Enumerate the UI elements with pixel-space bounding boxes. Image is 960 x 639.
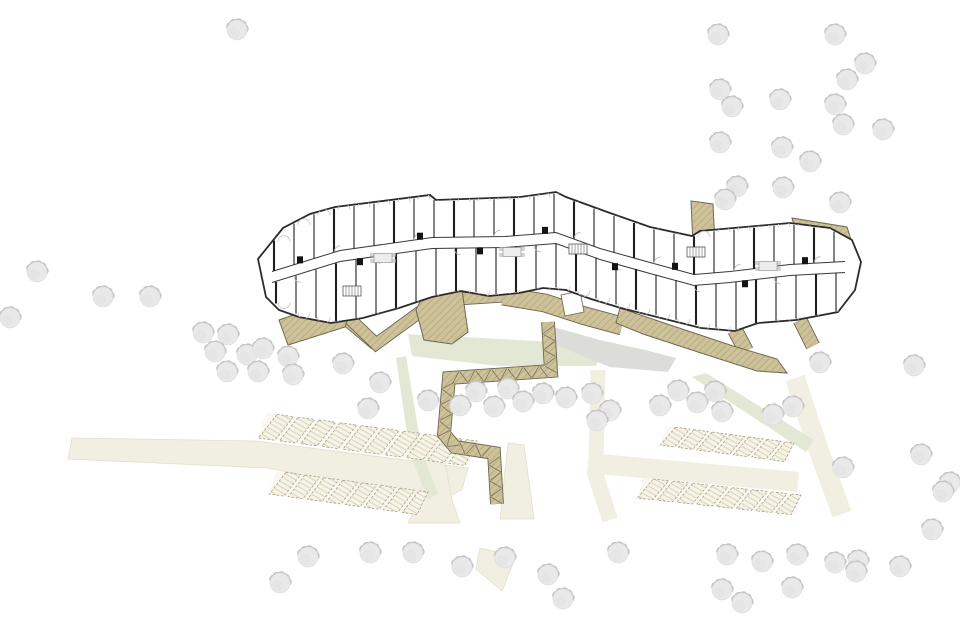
site-plan xyxy=(0,0,960,639)
tree-canopy-shade xyxy=(775,185,786,196)
tree-canopy-shade xyxy=(468,389,479,400)
tree-canopy-shade xyxy=(839,77,850,88)
tree-canopy-shade xyxy=(707,389,718,400)
tree-canopy-shade xyxy=(913,452,924,463)
tree-canopy-shade xyxy=(497,555,508,566)
tree-canopy-shade xyxy=(454,564,465,575)
tree-canopy-shade xyxy=(405,550,416,561)
table-top xyxy=(759,262,777,271)
chair xyxy=(500,254,503,257)
chair xyxy=(778,268,781,271)
tree-canopy-shade xyxy=(734,600,745,611)
tree-canopy-shade xyxy=(802,159,813,170)
tree-canopy-shade xyxy=(719,552,730,563)
site-plan-svg xyxy=(0,0,960,639)
tree-canopy-shade xyxy=(754,559,765,570)
tree-canopy-shade xyxy=(785,404,796,415)
tree-canopy-shade xyxy=(515,399,526,410)
tree-canopy-shade xyxy=(875,127,886,138)
tree-canopy-shade xyxy=(906,363,917,374)
tree-canopy-shade xyxy=(710,32,721,43)
tree-canopy-shade xyxy=(827,32,838,43)
tree-canopy-shade xyxy=(835,122,846,133)
wall-block xyxy=(802,257,808,264)
tree-canopy-shade xyxy=(848,569,859,580)
background xyxy=(0,0,960,639)
tree-canopy-shade xyxy=(219,369,230,380)
tree-canopy-shade xyxy=(772,97,783,108)
chair xyxy=(393,254,396,257)
wall-block xyxy=(742,280,748,287)
wall-block xyxy=(672,263,678,270)
wall-block xyxy=(612,263,618,270)
tree-canopy-shade xyxy=(250,369,261,380)
table-top xyxy=(374,254,392,263)
tree-canopy-shade xyxy=(812,360,823,371)
tree-canopy-shade xyxy=(95,294,106,305)
table-top xyxy=(503,248,521,257)
chair xyxy=(756,262,759,265)
tree-canopy-shade xyxy=(584,391,595,402)
tree-canopy-shade xyxy=(195,330,206,341)
tree-canopy-shade xyxy=(714,409,725,420)
wall-block xyxy=(297,256,303,263)
tree-canopy-shade xyxy=(610,550,621,561)
tree-canopy-shade xyxy=(255,346,266,357)
tree-canopy-shade xyxy=(924,527,935,538)
tree-canopy-shade xyxy=(827,102,838,113)
tree-canopy-shade xyxy=(207,349,218,360)
tree-canopy-shade xyxy=(239,352,250,363)
tree-canopy-shade xyxy=(774,145,785,156)
table xyxy=(371,254,396,263)
stair xyxy=(687,247,705,257)
tree-canopy-shade xyxy=(285,372,296,383)
tree-canopy-shade xyxy=(789,552,800,563)
wall-block xyxy=(477,247,483,254)
tree-canopy-shade xyxy=(670,388,681,399)
tree-canopy-shade xyxy=(452,403,463,414)
tree-canopy-shade xyxy=(486,404,497,415)
tree-canopy-shade xyxy=(589,418,600,429)
wall-block xyxy=(357,258,363,265)
wall-block xyxy=(417,233,423,240)
tree-canopy-shade xyxy=(555,596,566,607)
tree-canopy-shade xyxy=(712,140,723,151)
tree-canopy-shade xyxy=(717,197,728,208)
tree-canopy-shade xyxy=(714,587,725,598)
stair xyxy=(569,244,587,254)
tree-canopy-shade xyxy=(29,269,40,280)
tree-canopy-shade xyxy=(832,200,843,211)
tree-canopy-shade xyxy=(360,406,371,417)
chair xyxy=(756,268,759,271)
tree-canopy-shade xyxy=(892,564,903,575)
tree-canopy-shade xyxy=(784,585,795,596)
tree-canopy-shade xyxy=(362,550,373,561)
tree-canopy-shade xyxy=(652,403,663,414)
tree-canopy-shade xyxy=(272,580,283,591)
tree-canopy-shade xyxy=(765,412,776,423)
table xyxy=(756,262,781,271)
tree-canopy-shade xyxy=(835,465,846,476)
tree-canopy-shade xyxy=(857,61,868,72)
tree-canopy-shade xyxy=(142,294,153,305)
table xyxy=(500,248,525,257)
tree-canopy-shade xyxy=(500,386,511,397)
tree-canopy-shade xyxy=(935,489,946,500)
tree-canopy-shade xyxy=(300,554,311,565)
tree-canopy-shade xyxy=(535,391,546,402)
tree-canopy-shade xyxy=(558,395,569,406)
tree-canopy-shade xyxy=(420,398,431,409)
tree-canopy-shade xyxy=(827,560,838,571)
wall-block xyxy=(542,227,548,234)
tree-canopy-shade xyxy=(712,87,723,98)
stair xyxy=(343,286,361,296)
tree-canopy-shade xyxy=(689,400,700,411)
tree-canopy-shade xyxy=(540,572,551,583)
tree-canopy-shade xyxy=(335,361,346,372)
chair xyxy=(778,262,781,265)
chair xyxy=(371,260,374,263)
chair xyxy=(500,248,503,251)
chair xyxy=(522,248,525,251)
tree-canopy-shade xyxy=(220,332,231,343)
tree-canopy-shade xyxy=(2,315,13,326)
tree-canopy-shade xyxy=(280,354,291,365)
tree-canopy-shade xyxy=(229,27,240,38)
tree-canopy-shade xyxy=(372,380,383,391)
tree-canopy-shade xyxy=(724,104,735,115)
chair xyxy=(393,260,396,263)
chair xyxy=(371,254,374,257)
chair xyxy=(522,254,525,257)
